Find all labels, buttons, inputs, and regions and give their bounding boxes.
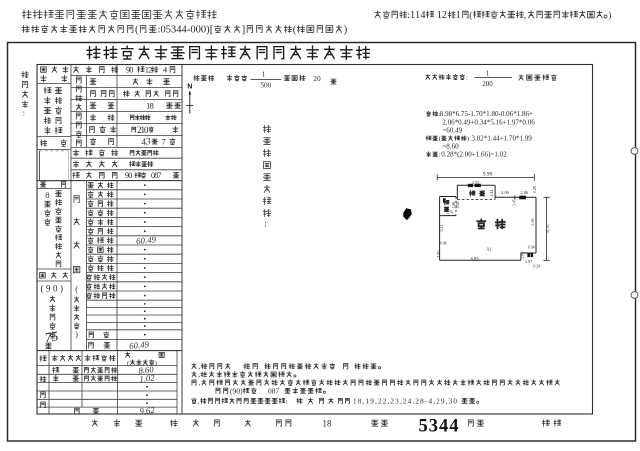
svg-text:1: 1 [486,70,490,78]
svg-text:200: 200 [482,80,493,88]
svg-text:(: ( [75,285,78,294]
svg-text:=60.49: =60.49 [442,127,462,135]
svg-text:(: ( [135,25,139,36]
svg-text:90: 90 [125,171,132,180]
svg-text:60.49: 60.49 [136,234,157,246]
svg-text:(: ( [127,360,129,367]
svg-text::: : [286,398,288,406]
svg-text:8: 8 [45,190,50,200]
svg-text:1.97: 1.97 [525,259,532,264]
svg-text:,: , [198,398,200,406]
svg-text:90: 90 [232,386,240,395]
svg-text:9.98: 9.98 [483,171,492,177]
svg-text:7: 7 [162,137,166,146]
svg-text:210: 210 [137,125,149,135]
svg-text:20: 20 [313,74,321,83]
svg-text:2.00: 2.00 [501,190,509,195]
svg-text:5344: 5344 [419,417,459,437]
svg-text::: : [466,75,468,82]
svg-text:18: 18 [146,101,154,111]
svg-text:(: ( [293,25,297,36]
svg-text:12: 12 [145,66,152,75]
svg-text:0.29: 0.29 [533,265,540,269]
svg-text:18,19,22,23,24,28-4,29,30: 18,19,22,23,24,28-4,29,30 [353,397,457,405]
svg-text:500: 500 [260,82,271,90]
svg-text:,: , [524,10,526,20]
svg-text::: : [23,109,25,118]
svg-text:): ) [240,387,243,395]
svg-text::: : [264,219,267,230]
svg-text:4: 4 [163,66,167,75]
svg-text:(: ( [439,136,441,143]
svg-text:): ) [608,10,611,20]
svg-text:]: ] [242,25,246,36]
svg-text:): ) [155,360,157,367]
svg-text:1: 1 [456,10,461,21]
svg-text:(: ( [469,10,472,20]
svg-text:,: , [198,371,200,379]
svg-text:087: 087 [268,386,279,395]
svg-text:1.76: 1.76 [446,210,453,215]
svg-text:3.45: 3.45 [513,199,517,206]
svg-text:1: 1 [262,71,266,79]
svg-text:): ) [75,330,78,339]
svg-text:8.76: 8.76 [546,224,551,233]
svg-text:=8.60: =8.60 [442,143,459,151]
svg-text:,: , [198,363,200,371]
svg-text:8.98*6.75-1.70*1.80-0.06*1.86+: 8.98*6.75-1.70*1.80-0.06*1.86+ [440,110,533,118]
svg-text:(90): (90) [41,283,64,293]
svg-text:0.28*(2.00+1.66)=1.02: 0.28*(2.00+1.66)=1.02 [441,151,507,159]
svg-text:2.86: 2.86 [521,190,529,195]
svg-text:12: 12 [437,10,447,21]
svg-text:0.28: 0.28 [456,202,460,209]
svg-text:114: 114 [410,10,426,21]
svg-text:1.02: 1.02 [139,373,156,384]
svg-text:6.95: 6.95 [471,256,480,261]
svg-text:90: 90 [126,66,133,75]
svg-text:0.28: 0.28 [533,186,537,193]
svg-text:3.11: 3.11 [439,224,444,231]
svg-text:2.05: 2.05 [521,252,525,259]
svg-text:60.49: 60.49 [129,339,150,351]
svg-text:): ) [344,25,348,36]
svg-text:N: N [187,84,192,91]
svg-text:,: , [198,379,200,387]
svg-text:0.06: 0.06 [440,242,447,246]
svg-text:9.62: 9.62 [139,405,156,416]
svg-text:5.36: 5.36 [530,218,535,225]
svg-text:3.82*1.44+1.70*1.99: 3.82*1.44+1.70*1.99 [472,135,533,143]
svg-text:2.52: 2.52 [472,180,480,185]
svg-text:1.85: 1.85 [436,251,441,258]
svg-text:0.34: 0.34 [528,245,535,249]
svg-text:087: 087 [151,171,161,180]
svg-text:1.44: 1.44 [489,190,494,197]
svg-text:43: 43 [141,137,152,148]
svg-text::05344-000)[: :05344-000)[ [158,25,214,36]
svg-text:A2: A2 [486,247,491,252]
svg-text:2.06*0.49+0.34*5.16+1.97*0.06: 2.06*0.49+0.34*5.16+1.97*0.06 [442,119,535,127]
svg-text:18: 18 [323,418,333,428]
